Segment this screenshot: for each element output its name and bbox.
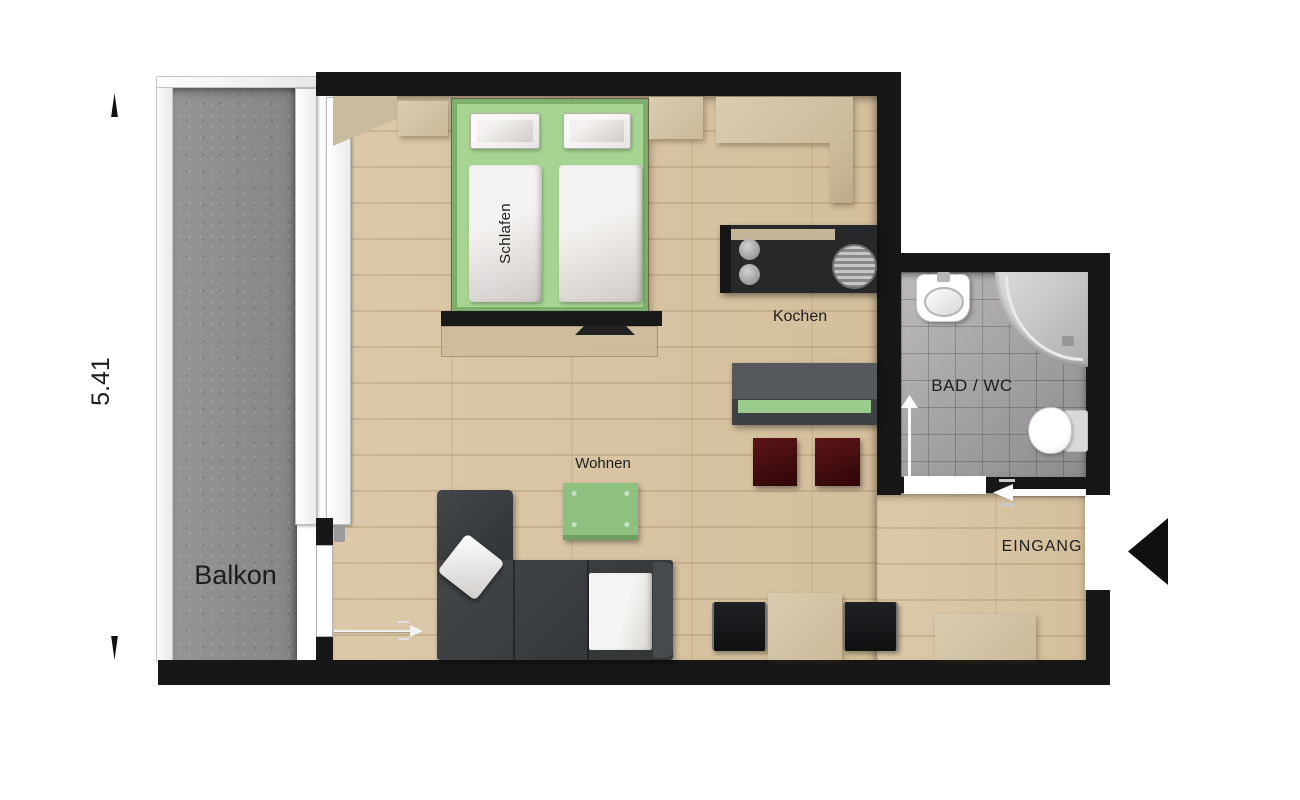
bed-duvet-left: Schlafen [469,165,542,302]
bed-duvet-right [559,165,642,302]
floor-plan-canvas: Schlafen Balkon [0,0,1300,800]
window-pane-inner [326,97,351,525]
nightstand-left [398,101,448,136]
balcony-door-dash-bottom [398,638,409,640]
wall-bottom [158,660,1110,685]
balcony-door-dash-top [398,621,409,623]
balcony-outer-wall-left [156,76,173,662]
dining-table [768,593,842,660]
bathroom-door-swing-line [908,404,911,476]
dimension-arrow-top-icon [108,93,121,117]
hob-back [739,239,760,260]
toilet-bowl [1028,407,1072,454]
entrance-desk [935,614,1036,660]
balcony-door-leaf [316,545,333,637]
kitchen-sink [832,244,877,289]
wardrobe-side [830,143,853,203]
double-bed: Schlafen [452,99,648,312]
entry-door-dash-bottom [999,503,1015,506]
dining-chair-left [712,602,767,651]
bathroom-sink [916,274,970,322]
bed-footboard [441,311,662,326]
bar-table [732,363,877,425]
stool-left [753,438,797,486]
kitchen-counter-side-panel [720,225,731,293]
nightstand-right [649,97,703,139]
dimension-arrow-bottom-icon [108,636,121,660]
bathroom-door-opening [904,476,986,494]
balcony-label: Balkon [178,560,293,591]
dimension-value: 5.41 [86,357,115,406]
bed-pillow-left [470,113,540,149]
dimension-label: 5.41 [55,338,147,424]
window-handle [334,525,345,542]
wall-right-upper [877,72,901,495]
bathroom-wall-top [877,253,1110,272]
sleeping-label: Schlafen [497,203,514,264]
wall-top [316,72,901,96]
bathroom-sink-basin [924,287,964,317]
entry-door-swing-line [1012,489,1086,496]
coffee-table [563,483,638,540]
living-label: Wohnen [563,455,643,472]
bar-bench [738,400,871,413]
sofa-seam-left [513,560,515,660]
kitchen-counter [720,225,877,293]
window-pane-outer [295,88,317,525]
bathroom-wall-right [1086,253,1110,684]
bathroom-sink-faucet [937,272,950,282]
sofa-throw [589,573,652,650]
balcony-outer-wall-top [156,76,317,88]
bathroom-label: BAD / WC [912,376,1032,396]
west-wall-upper-segment [316,518,333,545]
entrance-direction-arrow-icon [1128,518,1168,585]
entry-door-opening [1085,495,1112,590]
tv [575,326,635,335]
hob-front [739,264,760,285]
stool-right [815,438,860,486]
dining-chair-right [843,602,898,651]
sofa-armrest [653,562,673,658]
entrance-label: EINGANG [996,538,1088,556]
cooking-label: Kochen [758,308,842,326]
west-wall-lower-segment [316,637,333,662]
bed-pillow-right [563,113,631,149]
shower-drain [1062,336,1074,346]
entry-door-dash-top [999,479,1015,482]
balcony-door-swing-line [334,630,414,632]
wardrobe-top [716,97,853,143]
